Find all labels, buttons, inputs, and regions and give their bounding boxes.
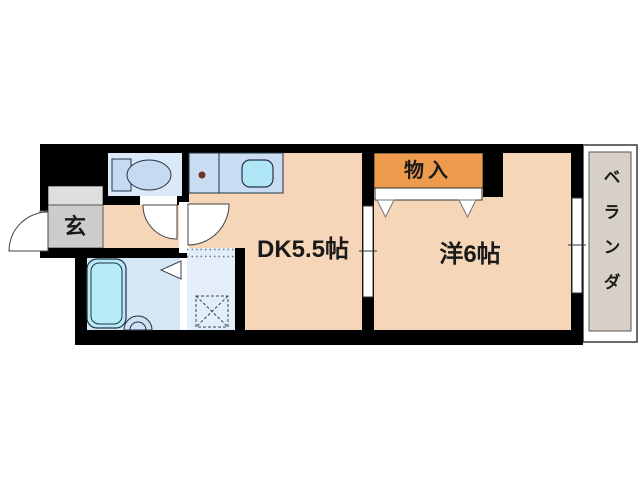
bathtub-icon (87, 259, 126, 328)
veranda-label: ベランダ (602, 168, 619, 308)
toilet-door-opening (140, 196, 177, 205)
wall-left-upper (40, 144, 48, 212)
entrance-door-arc-icon (9, 212, 48, 251)
wall-top-left-mass (40, 144, 108, 186)
wall-bottom (75, 330, 583, 345)
kitchen-sink-icon (242, 160, 273, 187)
genkan-step (48, 186, 103, 205)
kitchen-counter (189, 153, 283, 193)
dining-kitchen-label: DK5.5帖 (257, 238, 349, 262)
genkan-label: 玄 (64, 216, 86, 238)
toilet-icon (112, 159, 171, 191)
wall-closet-stub (483, 153, 503, 197)
wall-toilet-left (103, 186, 108, 205)
closet-door-strip (375, 188, 482, 200)
wall-hall-bottom (40, 248, 187, 258)
wall-laundry-right (235, 248, 245, 330)
floor-plan: 玄 DK5.5帖 物入 洋6帖 ベランダ (0, 0, 640, 480)
stove-burner-icon (199, 172, 206, 179)
wall-toilet-right (182, 144, 189, 205)
western-room-label: 洋6帖 (439, 243, 500, 267)
closet-label: 物入 (404, 161, 452, 181)
wall-top (40, 144, 583, 153)
wall-toilet-bottom-left (108, 196, 140, 205)
laundry-room-floor (187, 248, 235, 330)
